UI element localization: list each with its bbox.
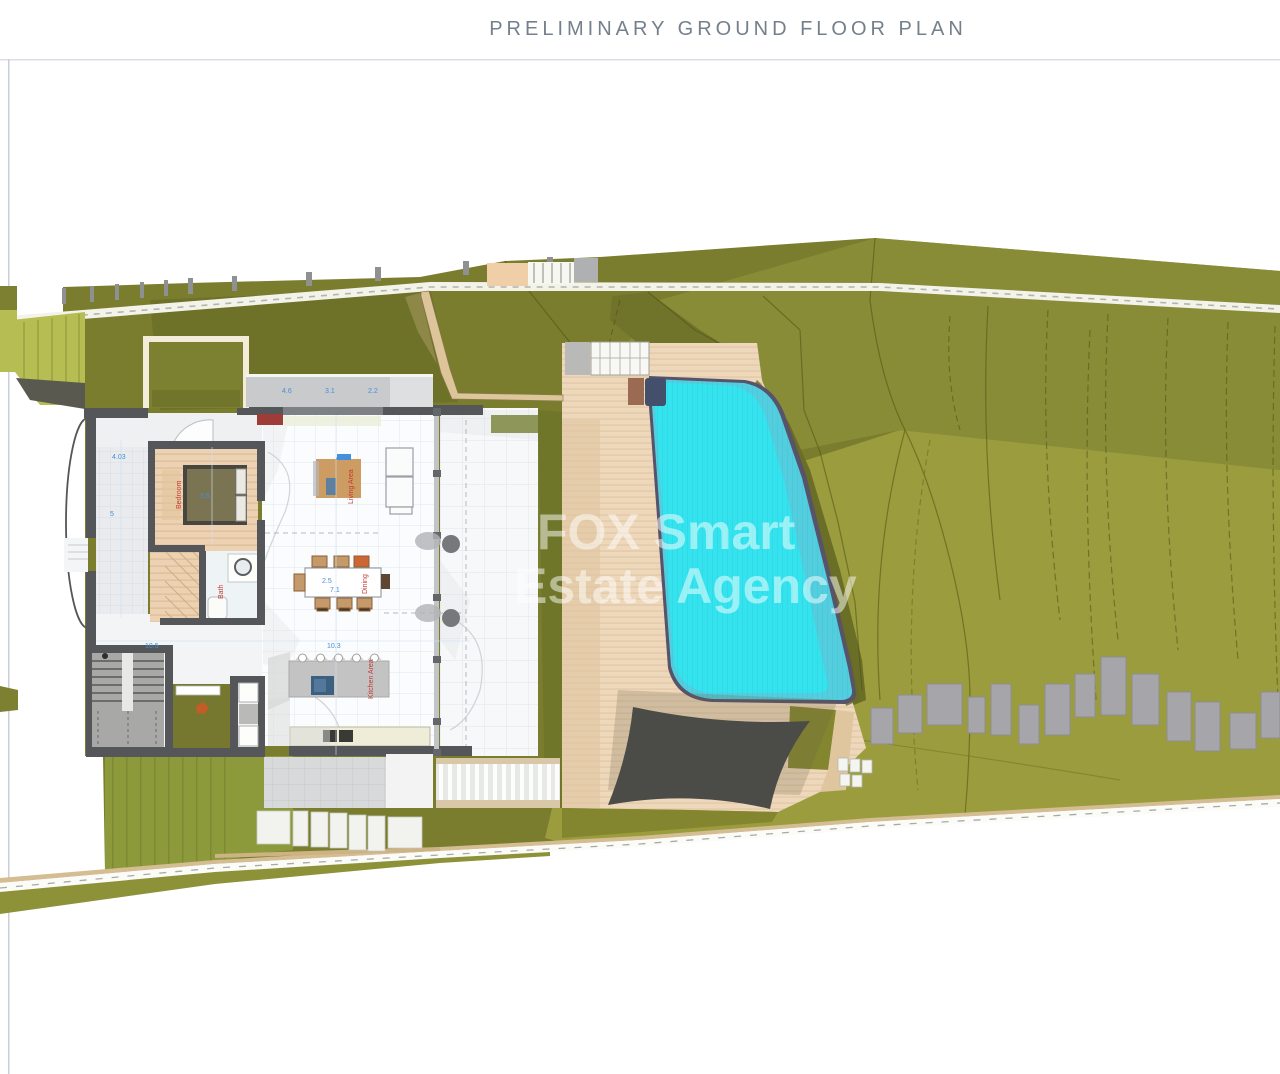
svg-text:Bedroom: Bedroom bbox=[176, 480, 183, 509]
svg-text:10.3: 10.3 bbox=[327, 643, 341, 650]
svg-text:4.6: 4.6 bbox=[282, 388, 292, 395]
svg-text:4.03: 4.03 bbox=[112, 454, 126, 461]
svg-text:3.1: 3.1 bbox=[325, 388, 335, 395]
svg-text:Kitchen Area: Kitchen Area bbox=[368, 659, 375, 699]
svg-text:Estate Agency: Estate Agency bbox=[514, 558, 857, 614]
svg-text:Dining: Dining bbox=[362, 574, 369, 594]
svg-text:Living Area: Living Area bbox=[348, 469, 355, 504]
svg-text:2.2: 2.2 bbox=[368, 388, 378, 395]
svg-text:3.6: 3.6 bbox=[200, 493, 210, 500]
svg-text:Bath: Bath bbox=[218, 584, 225, 599]
svg-text:5: 5 bbox=[110, 511, 114, 518]
svg-text:7.1: 7.1 bbox=[330, 587, 340, 594]
svg-text:10.5: 10.5 bbox=[145, 643, 159, 650]
svg-text:FOX Smart: FOX Smart bbox=[537, 504, 796, 560]
svg-text:2.5: 2.5 bbox=[322, 578, 332, 585]
svg-text:4.5: 4.5 bbox=[336, 455, 346, 462]
